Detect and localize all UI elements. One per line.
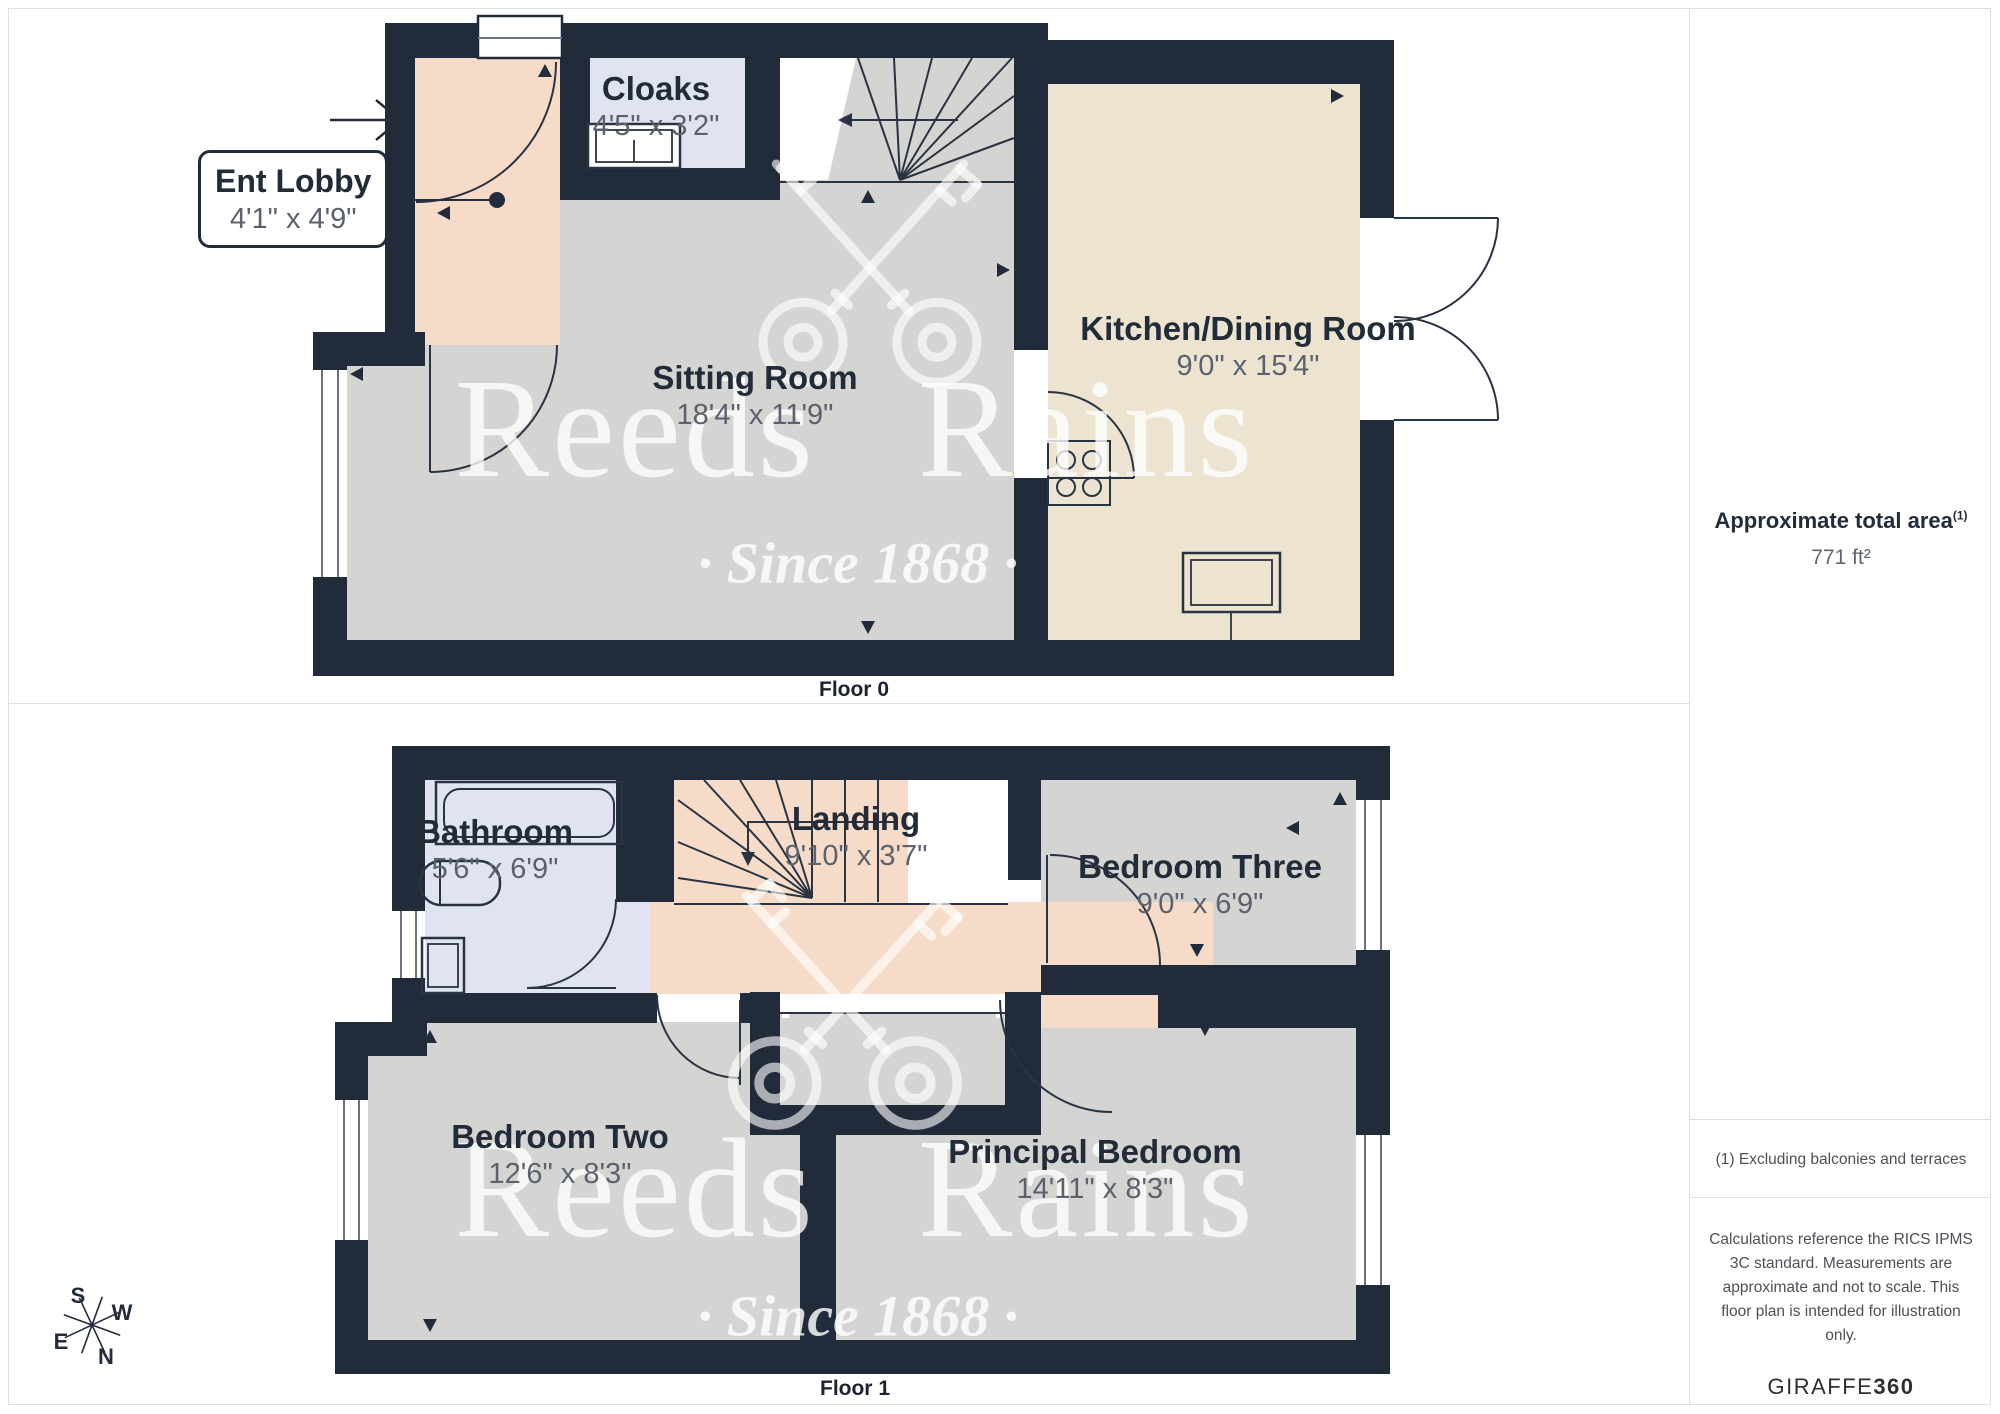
bathroom-window xyxy=(392,911,425,978)
room-name: Sitting Room xyxy=(652,359,857,397)
giraffe-suffix: 360 xyxy=(1873,1374,1914,1399)
compass-north: N xyxy=(98,1344,114,1369)
principal-window xyxy=(1356,1135,1390,1285)
floorplan-page: S W E N Reeds Rains · Since 1868 · Reeds… xyxy=(0,0,2000,1414)
room-dims: 18'4" x 11'9" xyxy=(652,397,857,433)
room-label-cloaks: Cloaks 4'5" x 3'2" xyxy=(593,70,720,144)
room-name: Bedroom Two xyxy=(451,1118,669,1156)
bedroom-two-window xyxy=(335,1100,368,1240)
room-name: Principal Bedroom xyxy=(948,1133,1241,1171)
room-name: Kitchen/Dining Room xyxy=(1080,310,1415,348)
room-dims: 9'0" x 6'9" xyxy=(1078,886,1322,922)
room-label-principal-bedroom: Principal Bedroom 14'11" x 8'3" xyxy=(948,1133,1241,1207)
ent-lobby-floor xyxy=(415,58,560,345)
bedroom-three-window xyxy=(1356,800,1390,950)
room-dims: 9'0" x 15'4" xyxy=(1080,348,1415,384)
room-label-kitchen-dining: Kitchen/Dining Room 9'0" x 15'4" xyxy=(1080,310,1415,384)
room-label-bedroom-two: Bedroom Two 12'6" x 8'3" xyxy=(451,1118,669,1192)
room-name: Bedroom Three xyxy=(1078,848,1322,886)
room-label-bathroom: Bathroom 5'6" x 6'9" xyxy=(417,813,573,887)
sidebar-disclaimer: Calculations reference the RICS IPMS 3C … xyxy=(1706,1228,1976,1400)
floor1-label: Floor 1 xyxy=(820,1377,890,1401)
room-dims: 14'11" x 8'3" xyxy=(948,1171,1241,1207)
room-dims: 5'6" x 6'9" xyxy=(417,851,573,887)
giraffe-text: GIRAFFE xyxy=(1767,1374,1873,1399)
floor0-label: Floor 0 xyxy=(819,678,889,702)
french-door-top-arc xyxy=(1394,218,1498,321)
ent-lobby-callout: Ent Lobby 4'1" x 4'9" xyxy=(198,150,388,248)
callout-anchor-dot xyxy=(489,192,505,208)
compass-west: W xyxy=(112,1300,133,1325)
room-name: Ent Lobby xyxy=(215,161,371,201)
area-note-ref: (1) xyxy=(1953,509,1968,523)
sidebar-footnote: (1) Excluding balconies and terraces xyxy=(1692,1148,1990,1172)
sitting-room-window xyxy=(313,370,347,577)
compass-icon: S W E N xyxy=(54,1283,133,1369)
footnote-text: (1) Excluding balconies and terraces xyxy=(1692,1148,1990,1172)
room-label-bedroom-three: Bedroom Three 9'0" x 6'9" xyxy=(1078,848,1322,922)
room-name: Bathroom xyxy=(417,813,573,851)
giraffe360-logo: GIRAFFE360 xyxy=(1706,1374,1976,1400)
area-value: 771 ft² xyxy=(1692,546,1990,570)
area-title-text: Approximate total area xyxy=(1714,508,1952,533)
area-title: Approximate total area(1) xyxy=(1692,508,1990,534)
room-name: Cloaks xyxy=(593,70,720,108)
room-label-sitting-room: Sitting Room 18'4" x 11'9" xyxy=(652,359,857,433)
room-name: Landing xyxy=(785,800,928,838)
room-label-landing: Landing 9'10" x 3'7" xyxy=(785,800,928,874)
room-dims: 9'10" x 3'7" xyxy=(785,838,928,874)
compass-south: S xyxy=(71,1283,86,1308)
room-dims: 12'6" x 8'3" xyxy=(451,1156,669,1192)
disclaimer-text: Calculations reference the RICS IPMS 3C … xyxy=(1706,1228,1976,1348)
sidebar-area-summary: Approximate total area(1) 771 ft² xyxy=(1692,508,1990,570)
room-dims: 4'5" x 3'2" xyxy=(593,108,720,144)
room-dims: 4'1" x 4'9" xyxy=(215,201,371,237)
compass-east: E xyxy=(54,1329,69,1354)
